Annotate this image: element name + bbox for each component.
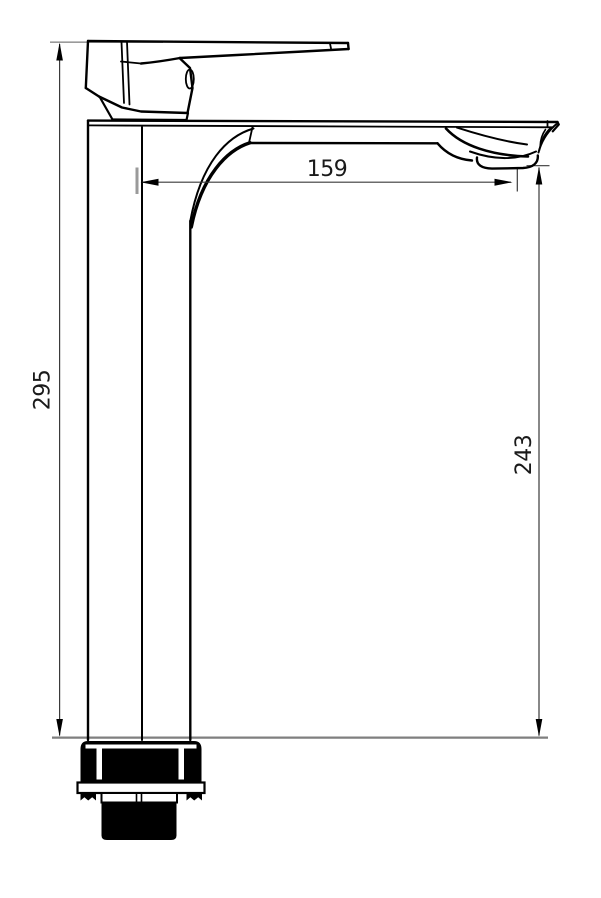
threaded-shank bbox=[102, 803, 177, 841]
gasket-slot-right bbox=[179, 749, 185, 780]
arrow-down-icon bbox=[56, 719, 63, 737]
dimension-spout-height: 243 bbox=[512, 167, 542, 737]
overall-height-label: 295 bbox=[31, 370, 56, 411]
arrow-left-icon bbox=[141, 179, 159, 186]
arrow-right-icon bbox=[495, 179, 513, 186]
gasket-highlight bbox=[86, 745, 197, 749]
spout-reach-label: 159 bbox=[307, 157, 348, 182]
dimension-overall-height: 295 bbox=[31, 43, 63, 737]
faucet-dimension-drawing: 295 159 243 bbox=[0, 0, 601, 898]
arrow-down-icon bbox=[536, 719, 543, 737]
faucet-outline bbox=[86, 41, 559, 740]
technical-drawing-page: 295 159 243 bbox=[0, 0, 601, 898]
shank-collar bbox=[102, 793, 178, 803]
dimension-spout-reach: 159 bbox=[141, 157, 513, 186]
mounting-flange bbox=[78, 783, 205, 794]
gasket-slot-left bbox=[97, 749, 103, 780]
handle-escutcheon bbox=[100, 98, 188, 121]
body-column bbox=[88, 121, 190, 740]
mounting-hardware bbox=[78, 742, 205, 841]
arrow-up-icon bbox=[536, 167, 543, 185]
spout-height-label: 243 bbox=[512, 435, 537, 476]
lever-handle bbox=[86, 41, 349, 113]
arrow-up-icon bbox=[56, 43, 63, 61]
aerator-outlet bbox=[438, 124, 557, 169]
